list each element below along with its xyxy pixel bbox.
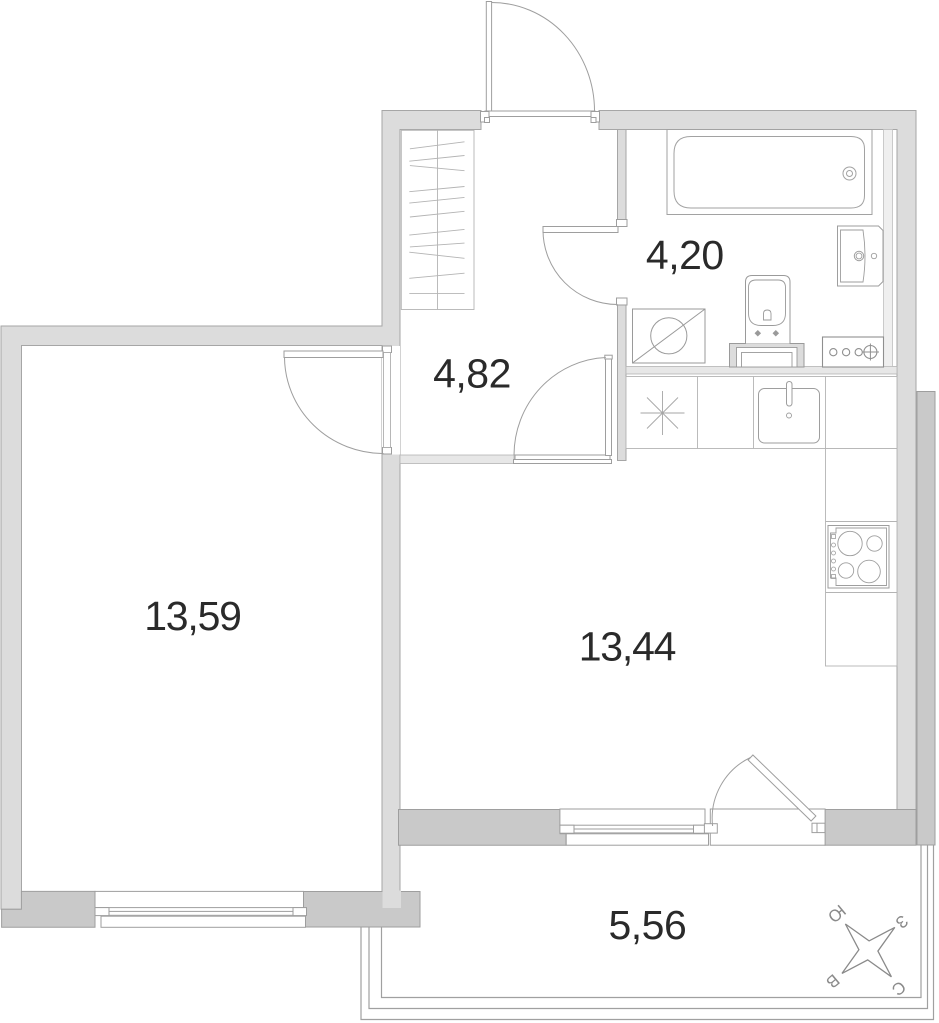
svg-text:13,59: 13,59 xyxy=(144,593,241,639)
svg-text:4,82: 4,82 xyxy=(433,350,511,396)
svg-text:4,20: 4,20 xyxy=(646,232,724,278)
svg-text:13,44: 13,44 xyxy=(579,624,676,670)
svg-text:5,56: 5,56 xyxy=(608,902,686,948)
